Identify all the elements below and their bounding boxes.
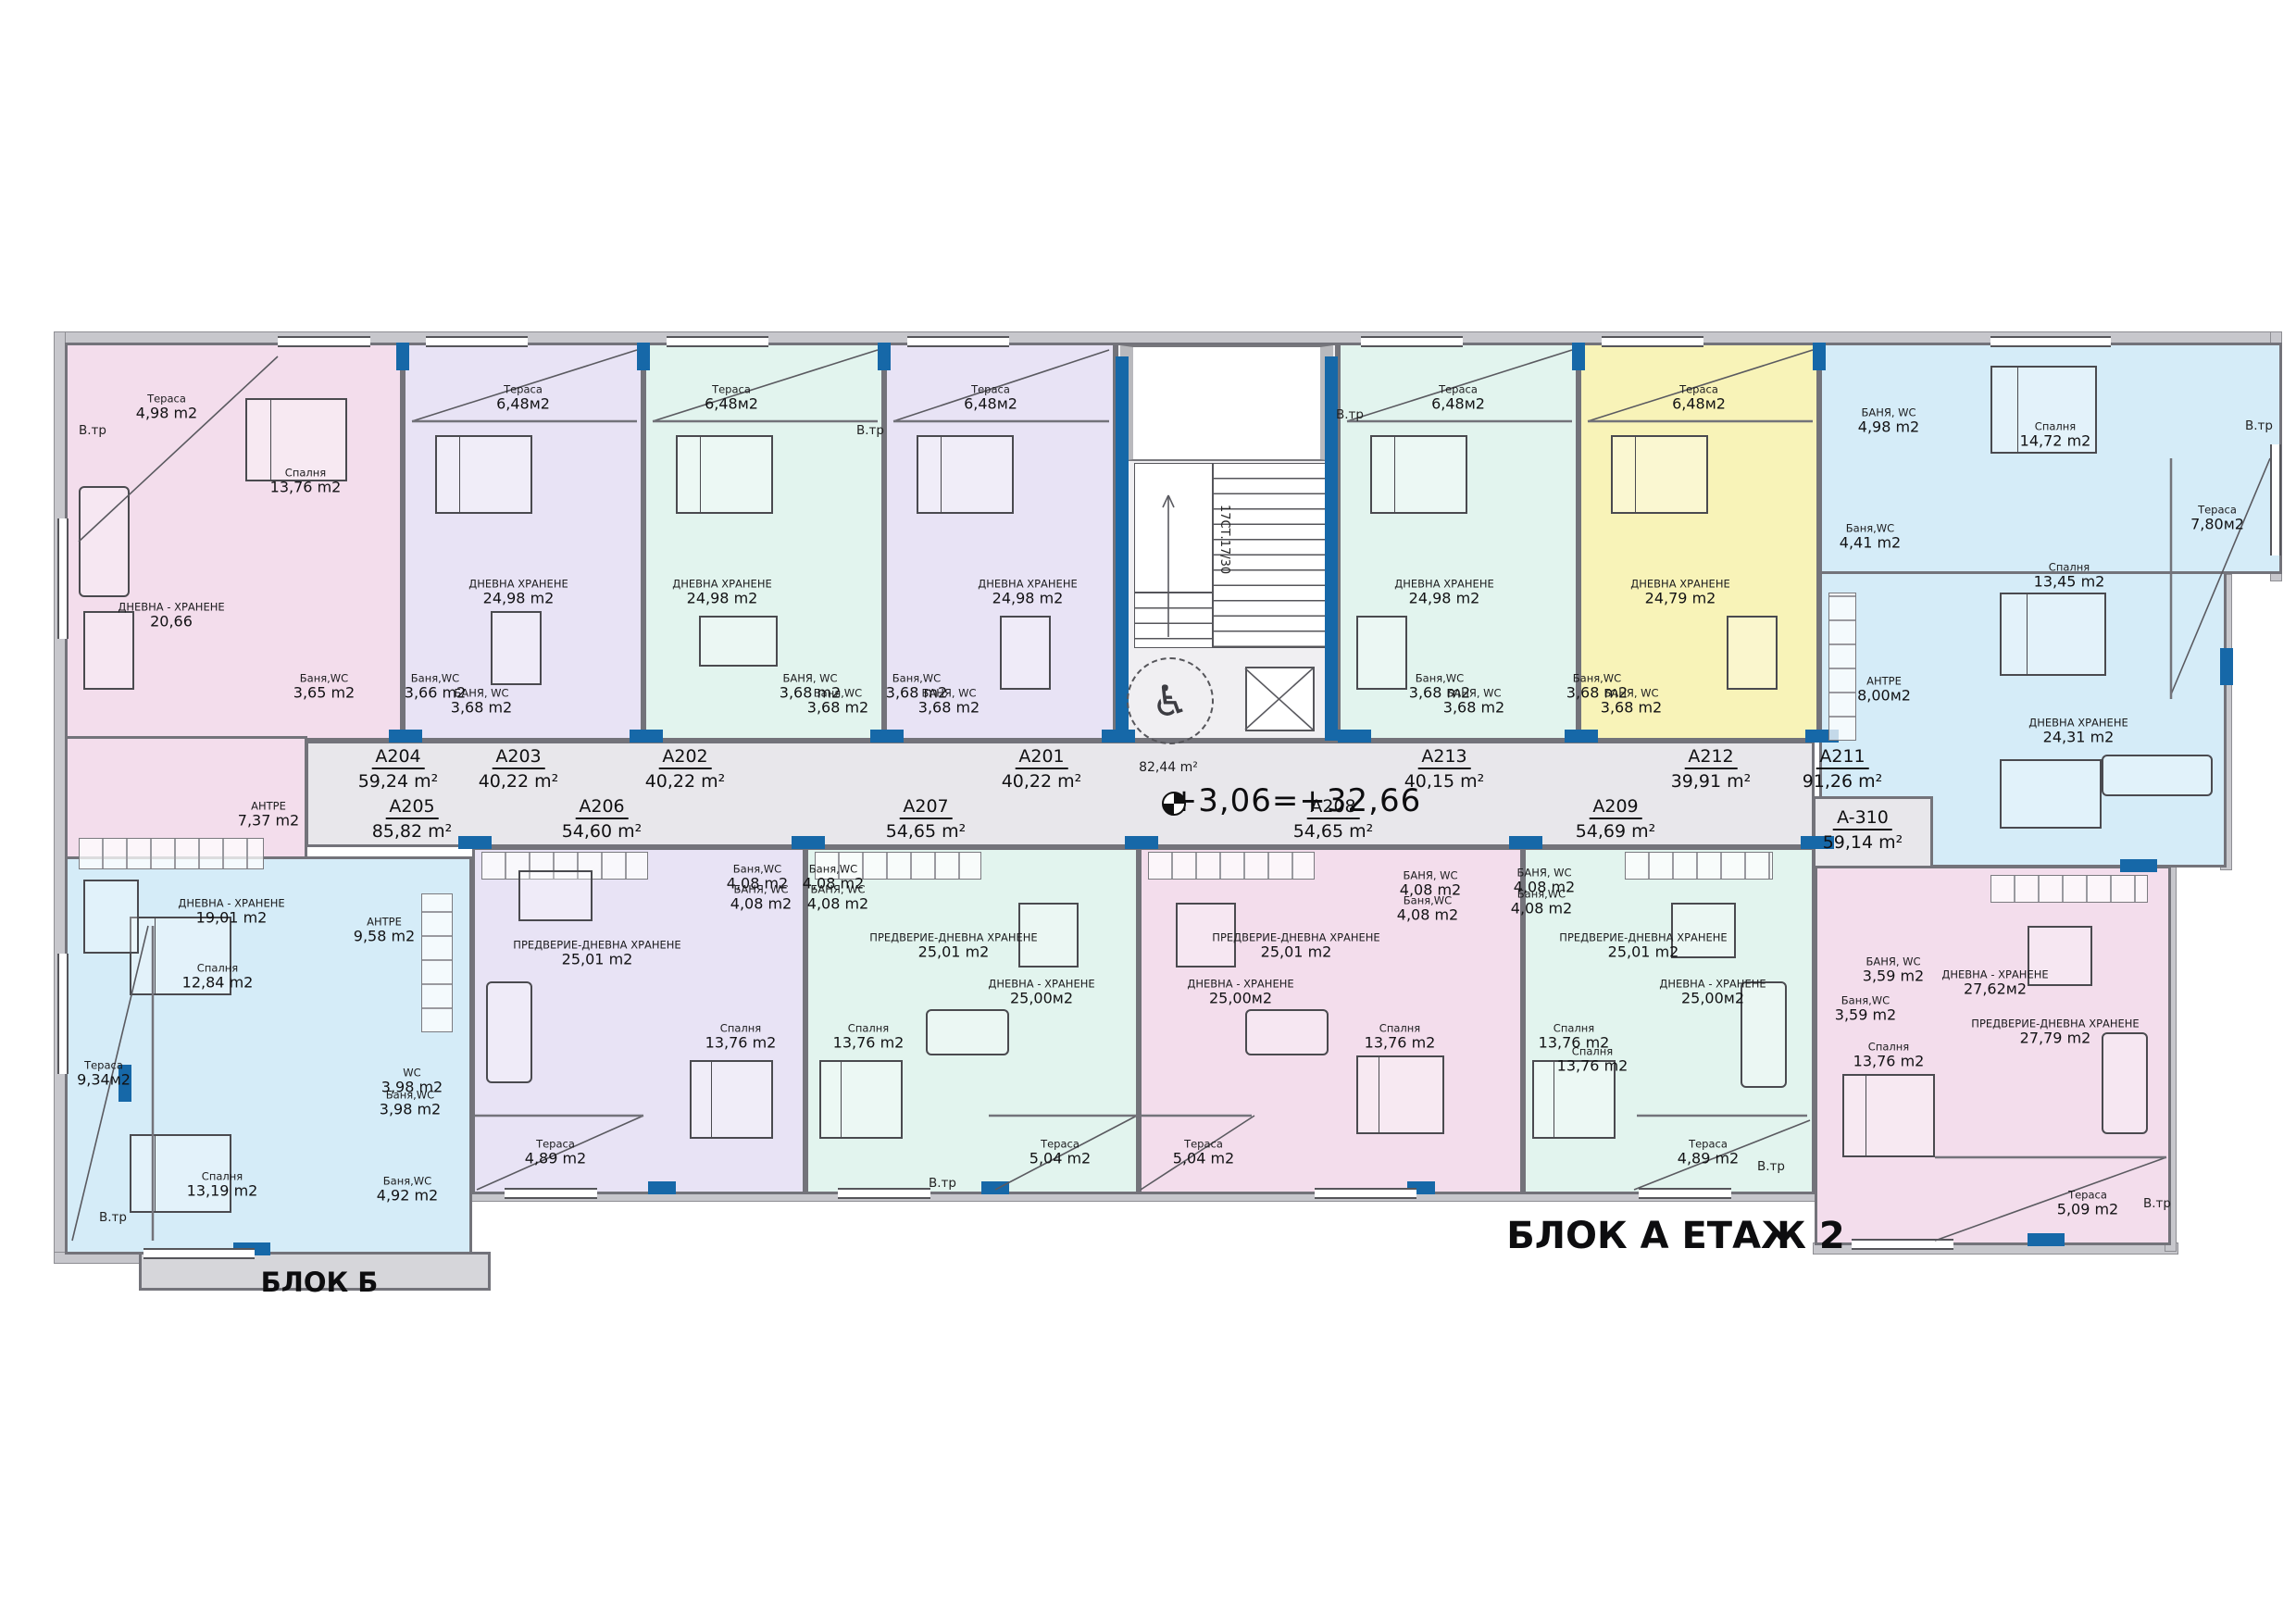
bed [690,1060,773,1139]
structural-column [648,1181,676,1194]
window [426,336,528,347]
kitchen-counter [1625,852,1773,880]
structural-column [1102,730,1135,743]
apartment-label-a310: A-31059,14 m² [1823,807,1903,853]
floor-plan: ♿ 17СТ.17/30 [0,0,2296,1623]
room-label-terrace: Тераса7,80м2 [2190,505,2244,533]
room-label-living: ДНЕВНА ХРАНЕНЕ24,79 m2 [1630,579,1729,607]
window [907,336,1009,347]
room-label-bath: БАНЯ, WC3,59 m2 [1863,956,1924,985]
room-label-bath: БАНЯ, WC3,68 m2 [451,688,512,717]
room-label-terrace: Тераса6,48м2 [1431,384,1485,413]
structural-column [1509,836,1542,849]
room-label-bath: БАНЯ, WC3,68 m2 [918,688,980,717]
bed [917,435,1014,514]
room-label-living: ДНЕВНА - ХРАНЕНЕ27,62м2 [1941,969,2048,998]
structural-column [1572,343,1585,370]
room-label-terrace: Тераса5,04 m2 [1173,1139,1234,1167]
bed [2000,593,2106,676]
room-label-terrace: Тераса6,48м2 [705,384,758,413]
wheelchair-icon: ♿ [1127,657,1214,744]
room-label-bedroom: Спалня13,76 m2 [705,1023,777,1052]
dining-table [1000,616,1051,690]
bed [819,1060,903,1139]
vtr-annotation: В.тр [2143,1196,2171,1211]
kitchen-counter [1148,852,1315,880]
sofa [2102,755,2213,796]
apartment-label-a212: A21239,91 m² [1671,746,1752,792]
room-label-living: ДНЕВНА ХРАНЕНЕ24,98 m2 [468,579,568,607]
window [1639,1188,1731,1199]
room-label-terrace: Тераса4,89 m2 [525,1139,586,1167]
stair-flight-left [1134,593,1213,648]
room-label-terrace: Тераса4,98 m2 [136,393,197,422]
dining-table [699,616,778,667]
room-label-bedroom: Спалня14,72 m2 [2020,421,2091,450]
window [143,1248,255,1259]
room-label-terrace: Тераса9,34м2 [77,1060,131,1089]
sofa [486,981,532,1083]
room-label-bedroom: Спалня13,76 m2 [833,1023,905,1052]
sofa [1245,1009,1329,1055]
room-label-bedroom: Спалня13,19 m2 [187,1171,258,1200]
dining-table [83,880,139,954]
room-label-terrace: Тераса5,04 m2 [1029,1139,1091,1167]
structural-column [630,730,663,743]
bed [1370,435,1467,514]
room-label-bath: Баня,WC4,08 m2 [1397,895,1458,924]
structural-column [458,836,492,849]
room-label-bedroom: Спалня13,76 m2 [1853,1042,1925,1070]
dining-table [491,611,542,685]
structural-column [1813,343,1826,370]
room-label-bath: Баня,WC4,92 m2 [377,1176,438,1205]
block-b-title: БЛОК Б [261,1267,379,1298]
room-label-terrace: Тераса6,48м2 [1672,384,1726,413]
page-title: БЛОК А ЕТАЖ 2 [1506,1215,1845,1257]
window [1315,1188,1416,1199]
room-label-bedroom: Спалня12,84 m2 [182,963,254,992]
apartment-label-a202: A20240,22 m² [645,746,726,792]
room-label-terrace: Тераса6,48м2 [964,384,1017,413]
room-label-living: ДНЕВНА ХРАНЕНЕ24,98 m2 [672,579,771,607]
vtr-annotation: В.тр [99,1210,127,1225]
room-label-terrace: Тераса5,09 m2 [2057,1190,2118,1218]
room-label-terrace: Тераса6,48м2 [496,384,550,413]
vtr-annotation: В.тр [79,423,106,438]
window [57,954,69,1074]
level-mark: +3,06=+32,66 [1171,782,1422,819]
room-label-hall: АНТРЕ8,00м2 [1857,676,1911,705]
structural-column [637,343,650,370]
room-label-living: ПРЕДВЕРИЕ-ДНЕВНА ХРАНЕНЕ25,01 m2 [513,940,680,968]
apartment-label-a209: A20954,69 m² [1576,796,1656,842]
structural-column [1116,356,1129,741]
room-label-bedroom: Спалня13,76 m2 [270,468,342,496]
bed [1842,1074,1935,1157]
elevator [1245,667,1315,731]
apartment-zone-a202 [643,343,884,741]
room-label-bath: Баня,WC3,65 m2 [293,673,355,702]
window [2270,444,2281,556]
structural-column [870,730,904,743]
structural-column [389,730,422,743]
kitchen-counter [421,893,453,1032]
window [838,1188,930,1199]
room-label-living: ПРЕДВЕРИЕ-ДНЕВНА ХРАНЕНЕ25,01 m2 [1212,932,1379,961]
vtr-annotation: В.тр [856,423,884,438]
room-label-living: ПРЕДВЕРИЕ-ДНЕВНА ХРАНЕНЕ27,79 m2 [1971,1018,2139,1047]
stair-landing [1134,463,1213,593]
bed [435,435,532,514]
structural-column [396,343,409,370]
room-label-living: ПРЕДВЕРИЕ-ДНЕВНА ХРАНЕНЕ25,01 m2 [1559,932,1727,961]
dining-table [518,870,593,921]
kitchen-counter [1828,593,1856,741]
stair-count-label: 17СТ.17/30 [1217,505,1231,574]
room-label-bath: БАНЯ, WC4,98 m2 [1858,407,1919,436]
dining-table [2000,759,2102,829]
room-label-living: ДНЕВНА - ХРАНЕНЕ25,00м2 [1187,979,1293,1007]
dining-table [1727,616,1778,690]
window [1602,336,1703,347]
window [505,1188,597,1199]
level-survey-icon [1162,792,1186,816]
room-label-bath: Баня,WC3,68 m2 [807,688,868,717]
structural-column [2220,648,2233,685]
vtr-annotation: В.тр [2245,418,2273,433]
bed [1611,435,1708,514]
kitchen-counter [1990,875,2148,903]
room-label-hall: АНТРЕ9,58 m2 [354,917,415,945]
room-label-bedroom: Спалня13,45 m2 [2034,562,2105,591]
room-label-bedroom: Спалня13,76 m2 [1365,1023,1436,1052]
sofa [926,1009,1009,1055]
window [1361,336,1463,347]
vtr-annotation: В.тр [929,1176,956,1191]
room-label-bedroom: Спалня13,76 m2 [1557,1046,1628,1075]
structural-column [1125,836,1158,849]
apartment-label-a211: A21191,26 m² [1803,746,1883,792]
room-label-living: ДНЕВНА - ХРАНЕНЕ20,66 [118,602,224,630]
room-label-bath: БАНЯ, WC4,08 m2 [730,884,792,913]
structural-column [2120,859,2157,872]
room-label-living: ДНЕВНА - ХРАНЕНЕ25,00м2 [1659,979,1766,1007]
apartment-label-a204: A20459,24 m² [358,746,439,792]
room-label-bath: БАНЯ, WC4,08 m2 [807,884,868,913]
room-label-living: ДНЕВНА ХРАНЕНЕ24,98 m2 [978,579,1077,607]
sofa [2102,1032,2148,1134]
structural-column [1338,730,1371,743]
room-label-living: ДНЕВНА ХРАНЕНЕ24,31 m2 [2028,718,2128,746]
entrance-vestibule [1120,345,1333,461]
sofa [79,486,130,597]
dining-table [1356,616,1407,690]
bed [676,435,773,514]
window [57,518,69,639]
apartment-label-a205: A20585,82 m² [372,796,453,842]
room-label-living: ПРЕДВЕРИЕ-ДНЕВНА ХРАНЕНЕ25,01 m2 [869,932,1037,961]
window [1852,1239,1953,1250]
structural-column [878,343,891,370]
structural-column [981,1181,1009,1194]
bed [1356,1055,1444,1134]
window [278,336,370,347]
apartment-label-a207: A20754,65 m² [886,796,967,842]
structural-column [792,836,825,849]
vtr-annotation: В.тр [1757,1159,1785,1174]
room-label-living: ДНЕВНА - ХРАНЕНЕ25,00м2 [988,979,1094,1007]
window [667,336,768,347]
room-label-bath: Баня,WC4,08 m2 [1511,889,1572,918]
vtr-annotation: В.тр [1336,407,1364,422]
window [1990,336,2111,347]
room-label-bath: БАНЯ, WC3,68 m2 [1443,688,1504,717]
apartment-label-a206: A20654,60 m² [562,796,643,842]
apartment-label-a203: A20340,22 m² [479,746,559,792]
structural-column [1565,730,1598,743]
structural-column [2028,1233,2065,1246]
room-label-hall: АНТРЕ7,37 m2 [238,801,299,830]
kitchen-counter [79,838,264,869]
room-label-living: ДНЕВНА - ХРАНЕНЕ19,01 m2 [178,898,284,927]
room-label-bath: БАНЯ, WC3,68 m2 [1601,688,1662,717]
room-label-living: ДНЕВНА ХРАНЕНЕ24,98 m2 [1394,579,1493,607]
room-label-bath: Баня,WC3,98 m2 [380,1090,441,1118]
room-label-terrace: Тераса4,89 m2 [1678,1139,1739,1167]
apartment-label-a201: A20140,22 m² [1002,746,1082,792]
room-label-bath: Баня,WC4,41 m2 [1840,523,1901,552]
room-label-bath: Баня,WC3,59 m2 [1835,995,1896,1024]
corridor-area-label: 82,44 m² [1139,761,1198,776]
